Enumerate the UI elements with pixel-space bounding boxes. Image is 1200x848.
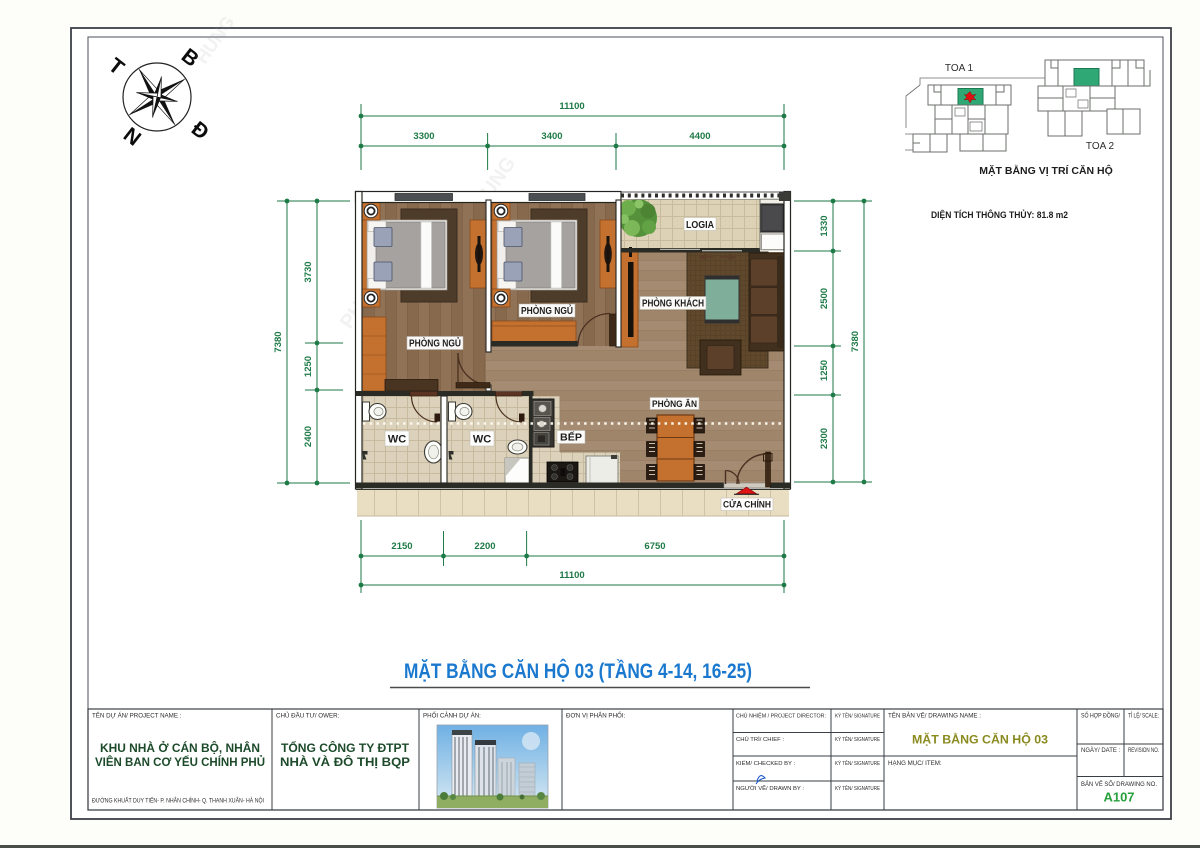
svg-text:TOA 1: TOA 1 bbox=[945, 63, 974, 74]
svg-text:2400: 2400 bbox=[303, 426, 314, 447]
svg-text:PHÒNG NGỦ: PHÒNG NGỦ bbox=[521, 304, 573, 317]
svg-text:TÊN DỰ ÁN/ PROJECT NAME :: TÊN DỰ ÁN/ PROJECT NAME : bbox=[92, 712, 182, 720]
svg-text:1250: 1250 bbox=[303, 356, 314, 377]
svg-text:TỈ LỆ/ SCALE:: TỈ LỆ/ SCALE: bbox=[1128, 712, 1159, 720]
svg-text:PHÒNG ĂN: PHÒNG ĂN bbox=[652, 398, 697, 410]
svg-text:2150: 2150 bbox=[391, 541, 412, 552]
svg-text:ĐƠN VỊ PHÂN PHỐI:: ĐƠN VỊ PHÂN PHỐI: bbox=[566, 713, 626, 720]
svg-text:DIỆN TÍCH THÔNG THỦY: 81.8 m2: DIỆN TÍCH THÔNG THỦY: 81.8 m2 bbox=[931, 209, 1068, 221]
svg-text:NGƯỜI VẼ/ DRAWN BY :: NGƯỜI VẼ/ DRAWN BY : bbox=[736, 785, 804, 792]
svg-text:PHỐI CẢNH DỰ ÁN:: PHỐI CẢNH DỰ ÁN: bbox=[423, 713, 481, 720]
svg-text:BẢN VẼ SỐ/ DRAWING NO.: BẢN VẼ SỐ/ DRAWING NO. bbox=[1081, 781, 1157, 788]
svg-text:HẠNG MỤC/ ITEM:: HẠNG MỤC/ ITEM: bbox=[888, 760, 942, 767]
svg-text:KÝ TÊN/ SIGNATURE: KÝ TÊN/ SIGNATURE bbox=[835, 735, 880, 743]
svg-text:PHÒNG NGỦ: PHÒNG NGỦ bbox=[409, 337, 461, 350]
svg-text:2500: 2500 bbox=[819, 288, 830, 309]
svg-text:BẾP: BẾP bbox=[560, 431, 582, 444]
svg-text:1330: 1330 bbox=[819, 215, 830, 236]
svg-text:MẶT BẰNG VỊ TRÍ CĂN HỘ: MẶT BẰNG VỊ TRÍ CĂN HỘ bbox=[979, 164, 1113, 177]
svg-text:A107: A107 bbox=[1103, 790, 1134, 805]
svg-text:KÝ TÊN/ SIGNATURE: KÝ TÊN/ SIGNATURE bbox=[835, 712, 880, 720]
svg-text:6750: 6750 bbox=[644, 541, 665, 552]
svg-text:TOA 2: TOA 2 bbox=[1086, 141, 1115, 152]
svg-text:11100: 11100 bbox=[559, 101, 584, 112]
svg-text:CỬA CHÍNH: CỬA CHÍNH bbox=[723, 499, 771, 511]
svg-text:NHÀ VÀ ĐÔ THỊ BQP: NHÀ VÀ ĐÔ THỊ BQP bbox=[280, 754, 410, 769]
svg-text:4400: 4400 bbox=[689, 131, 710, 142]
svg-text:SỐ HỢP ĐỒNG/: SỐ HỢP ĐỒNG/ bbox=[1081, 713, 1120, 720]
svg-text:2300: 2300 bbox=[819, 428, 830, 449]
svg-text:WC: WC bbox=[388, 434, 406, 446]
svg-text:KIỂM/ CHECKED BY :: KIỂM/ CHECKED BY : bbox=[736, 760, 796, 767]
svg-text:PHÒNG KHÁCH: PHÒNG KHÁCH bbox=[642, 297, 704, 310]
svg-text:MẶT BẰNG CĂN HỘ 03: MẶT BẰNG CĂN HỘ 03 bbox=[912, 732, 1048, 747]
svg-text:KÝ TÊN/ SIGNATURE: KÝ TÊN/ SIGNATURE bbox=[835, 784, 880, 792]
svg-text:MẶT BẰNG CĂN HỘ 03 (TẦNG 4-14,: MẶT BẰNG CĂN HỘ 03 (TẦNG 4-14, 16-25) bbox=[404, 659, 752, 683]
svg-text:7380: 7380 bbox=[273, 331, 284, 352]
svg-text:3400: 3400 bbox=[541, 131, 562, 142]
svg-text:KÝ TÊN/ SIGNATURE: KÝ TÊN/ SIGNATURE bbox=[835, 759, 880, 767]
svg-text:KHU NHÀ Ở CÁN BỘ, NHÂN: KHU NHÀ Ở CÁN BỘ, NHÂN bbox=[100, 740, 260, 755]
svg-text:TỔNG CÔNG TY ĐTPT: TỔNG CÔNG TY ĐTPT bbox=[281, 740, 410, 755]
svg-text:2200: 2200 bbox=[474, 541, 495, 552]
svg-text:REVISION NO.: REVISION NO. bbox=[1128, 748, 1159, 754]
svg-text:CHỦ TRÌ/ CHIEF :: CHỦ TRÌ/ CHIEF : bbox=[736, 736, 784, 743]
svg-text:CHỦ ĐẦU TƯ/ OWER:: CHỦ ĐẦU TƯ/ OWER: bbox=[276, 713, 340, 720]
svg-text:LOGIA: LOGIA bbox=[686, 219, 714, 231]
svg-text:1250: 1250 bbox=[819, 360, 830, 381]
svg-text:TÊN BẢN VẼ/ DRAWING NAME :: TÊN BẢN VẼ/ DRAWING NAME : bbox=[888, 712, 981, 720]
svg-text:CHỦ NHIỆM / PROJECT DIRECTOR:: CHỦ NHIỆM / PROJECT DIRECTOR: bbox=[736, 712, 826, 720]
svg-text:11100: 11100 bbox=[559, 570, 584, 581]
svg-text:ĐƯỜNG KHUẤT DUY TIẾN- P. NHÂN: ĐƯỜNG KHUẤT DUY TIẾN- P. NHÂN CHÍNH- Q. … bbox=[92, 798, 264, 805]
svg-text:NGÀY/ DATE :: NGÀY/ DATE : bbox=[1081, 747, 1121, 754]
svg-text:3730: 3730 bbox=[303, 261, 314, 282]
svg-text:7380: 7380 bbox=[850, 331, 861, 352]
svg-text:VIÊN BAN CƠ YẾU CHÍNH PHỦ: VIÊN BAN CƠ YẾU CHÍNH PHỦ bbox=[95, 754, 265, 769]
svg-text:WC: WC bbox=[473, 434, 491, 446]
svg-text:3300: 3300 bbox=[413, 131, 434, 142]
